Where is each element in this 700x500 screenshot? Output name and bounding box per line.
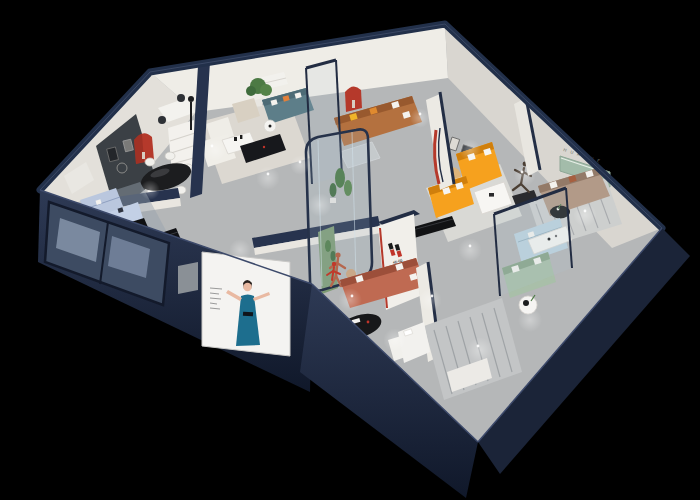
ac-unit-box — [178, 262, 198, 294]
red-arched-niche-caramel — [345, 86, 362, 112]
showroom-render: H U A Y U E — [0, 0, 700, 500]
isometric-floorplan: H U A Y U E — [0, 0, 700, 500]
niche-figurine — [142, 152, 145, 159]
woman-poster — [202, 252, 290, 356]
